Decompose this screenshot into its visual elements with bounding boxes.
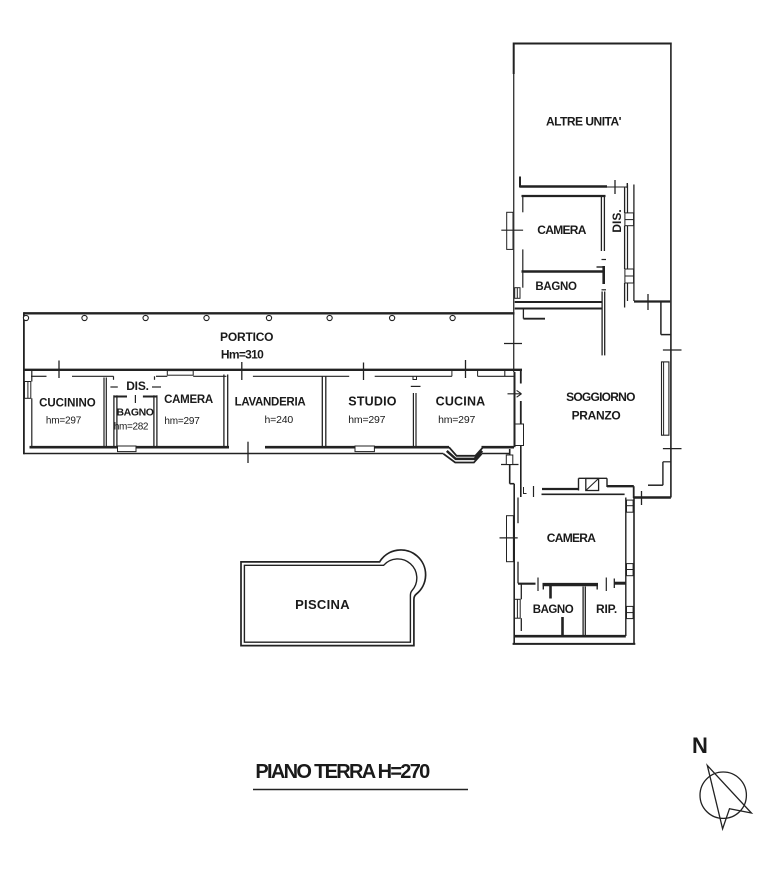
svg-text:PRANZO: PRANZO — [572, 408, 621, 422]
svg-text:hm=282: hm=282 — [114, 422, 149, 433]
svg-text:CAMERA: CAMERA — [164, 394, 213, 406]
svg-text:PISCINA: PISCINA — [295, 597, 350, 612]
svg-text:SOGGIORNO: SOGGIORNO — [566, 390, 635, 404]
svg-text:h=240: h=240 — [265, 414, 294, 426]
svg-text:ALTRE UNITA': ALTRE UNITA' — [546, 115, 622, 129]
svg-text:CUCININO: CUCININO — [39, 398, 96, 410]
svg-text:PIANO TERRA H=270: PIANO TERRA H=270 — [255, 761, 430, 783]
svg-text:RIP.: RIP. — [596, 602, 617, 616]
svg-text:hm=297: hm=297 — [164, 416, 200, 427]
svg-text:CAMERA: CAMERA — [547, 531, 596, 545]
svg-text:DIS.: DIS. — [126, 379, 149, 393]
svg-text:STUDIO: STUDIO — [348, 395, 397, 409]
svg-text:hm=297: hm=297 — [438, 414, 475, 426]
svg-text:LAVANDERIA: LAVANDERIA — [235, 397, 306, 409]
svg-text:DIS.: DIS. — [610, 209, 624, 232]
svg-text:Hm=310: Hm=310 — [221, 348, 264, 362]
svg-text:CUCINA: CUCINA — [436, 395, 486, 409]
svg-text:hm=297: hm=297 — [46, 416, 82, 427]
svg-text:N: N — [692, 733, 708, 758]
svg-text:BAGNO: BAGNO — [116, 407, 153, 419]
svg-text:hm=297: hm=297 — [348, 414, 385, 426]
svg-text:BAGNO: BAGNO — [533, 604, 574, 616]
svg-text:BAGNO: BAGNO — [535, 281, 577, 293]
svg-text:CAMERA: CAMERA — [537, 223, 586, 237]
svg-text:PORTICO: PORTICO — [220, 330, 273, 344]
